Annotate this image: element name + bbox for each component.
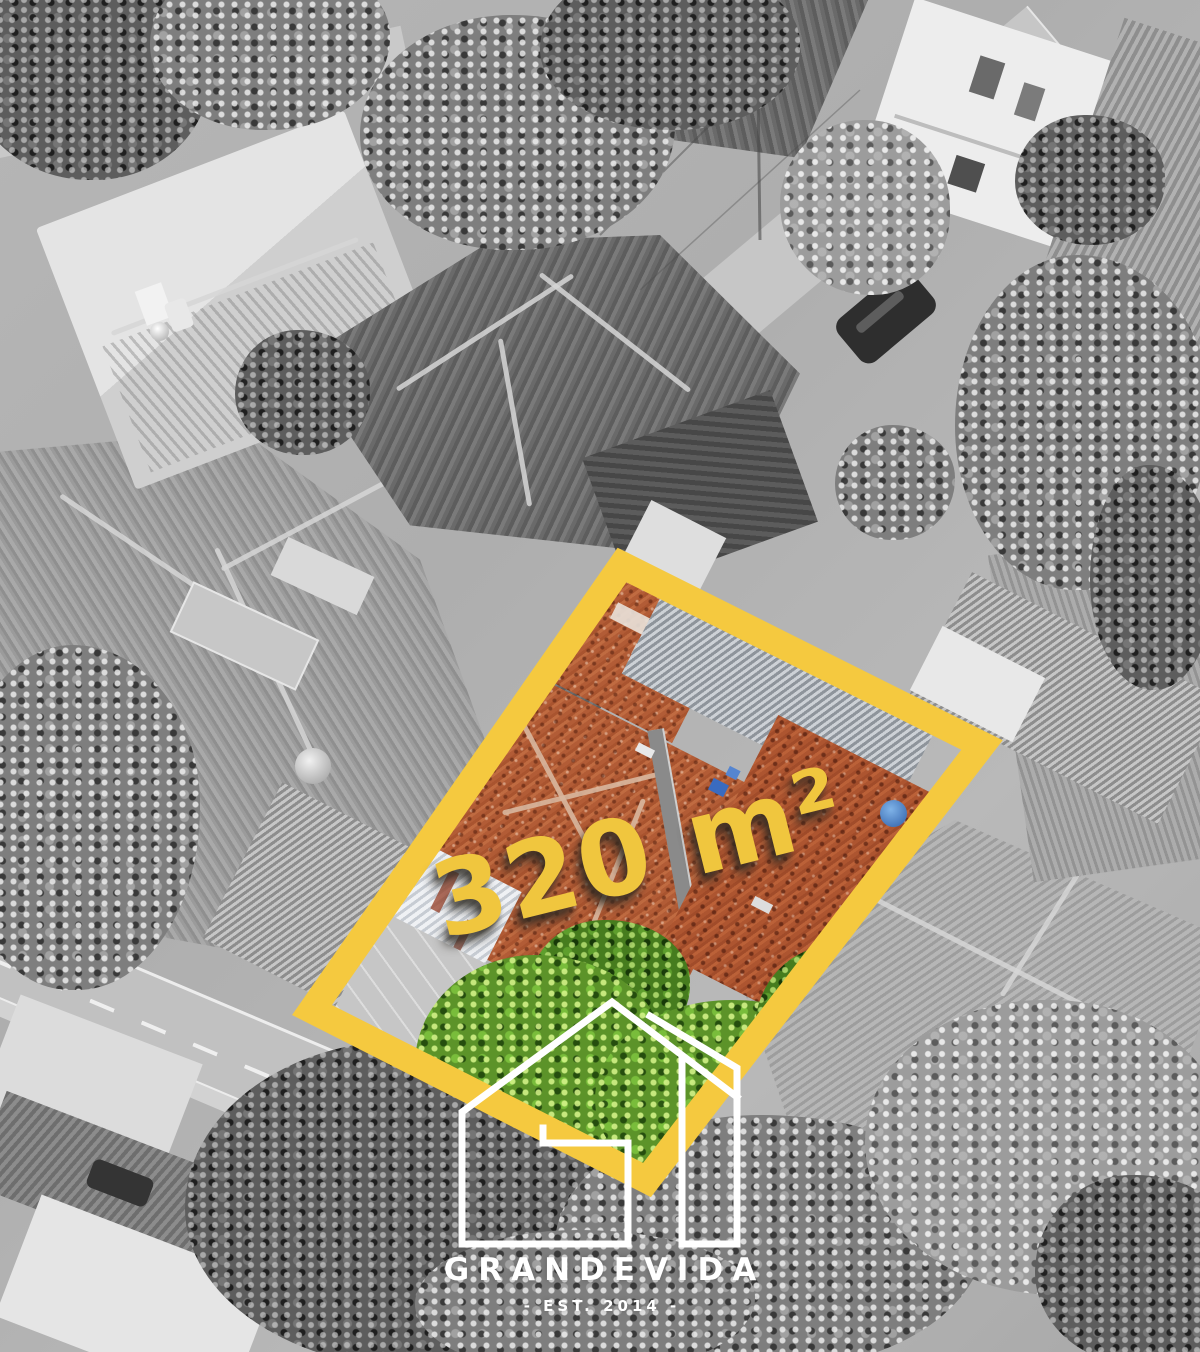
- aerial-photo: 320 m² GRANDEVIDA - EST. 2014 -: [0, 0, 1200, 1352]
- window: [969, 55, 1005, 99]
- tree-canopy: [235, 330, 370, 455]
- water-heater: [150, 322, 169, 341]
- car-windshield: [855, 289, 906, 334]
- door: [948, 154, 986, 192]
- brand-established: - EST. 2014 -: [300, 1297, 900, 1315]
- tree-canopy: [835, 425, 955, 540]
- brand-name: GRANDEVIDA: [300, 1252, 900, 1288]
- window: [1014, 82, 1045, 121]
- water-tank: [295, 748, 331, 784]
- tree-canopy: [1015, 115, 1165, 245]
